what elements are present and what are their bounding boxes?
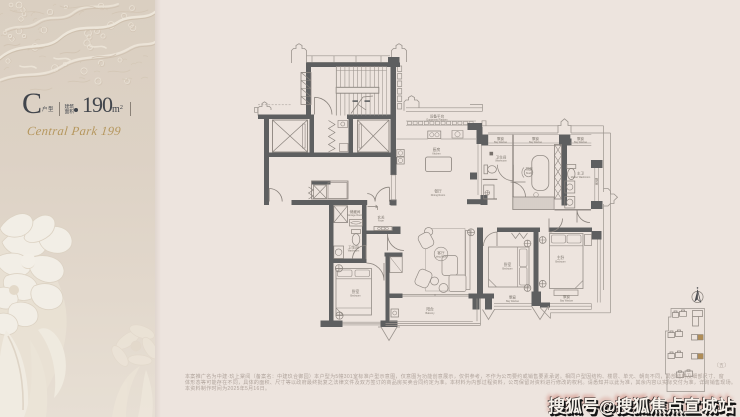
- svg-text:Dining Room: Dining Room: [431, 194, 445, 197]
- svg-text:Bay Window: Bay Window: [529, 142, 542, 144]
- svg-text:Storage Room: Storage Room: [347, 214, 362, 217]
- svg-text:Bedroom: Bedroom: [502, 268, 512, 271]
- svg-text:Bay Window: Bay Window: [506, 301, 519, 303]
- svg-text:窗: 窗: [595, 181, 598, 186]
- svg-text:飘窗: 飘窗: [563, 294, 570, 299]
- svg-text:卧室: 卧室: [352, 289, 360, 294]
- svg-text:设备平台: 设备平台: [430, 113, 445, 118]
- svg-text:Washroom: Washroom: [348, 250, 359, 253]
- svg-text:Washroom: Washroom: [495, 160, 506, 163]
- svg-text:餐厅: 餐厅: [434, 189, 442, 194]
- svg-text:Study: Study: [526, 172, 533, 175]
- svg-text:阳台: 阳台: [426, 306, 434, 311]
- svg-text:Bedroom: Bedroom: [555, 260, 565, 263]
- svg-text:飘窗: 飘窗: [577, 136, 584, 141]
- svg-text:Equipment Platform: Equipment Platform: [427, 119, 448, 122]
- svg-text:卫生间: 卫生间: [348, 244, 359, 249]
- svg-text:Master Washroom: Master Washroom: [571, 176, 590, 179]
- svg-text:Living Room: Living Room: [435, 257, 448, 259]
- svg-text:Bay Window: Bay Window: [560, 300, 573, 302]
- svg-text:玄关: 玄关: [377, 214, 385, 219]
- svg-text:Kitchen: Kitchen: [432, 152, 441, 155]
- svg-text:卫生间: 卫生间: [496, 154, 507, 159]
- svg-text:Foyer: Foyer: [378, 220, 384, 223]
- svg-text:主卫: 主卫: [577, 171, 585, 176]
- svg-text:Bay Window: Bay Window: [494, 142, 507, 144]
- svg-text:Bay Window: Bay Window: [574, 142, 587, 144]
- svg-text:Bedroom: Bedroom: [350, 294, 360, 297]
- svg-text:飘窗: 飘窗: [509, 295, 516, 300]
- svg-text:厨房: 厨房: [433, 147, 441, 152]
- svg-text:客厅: 客厅: [437, 250, 445, 255]
- svg-text:飘窗: 飘窗: [497, 136, 504, 141]
- svg-text:卧室: 卧室: [504, 262, 512, 267]
- svg-text:书房: 书房: [525, 166, 533, 171]
- svg-text:Balcony: Balcony: [426, 312, 436, 315]
- svg-text:主卧: 主卧: [557, 255, 565, 260]
- svg-text:储藏间: 储藏间: [350, 209, 361, 214]
- svg-text:飘窗: 飘窗: [532, 136, 539, 141]
